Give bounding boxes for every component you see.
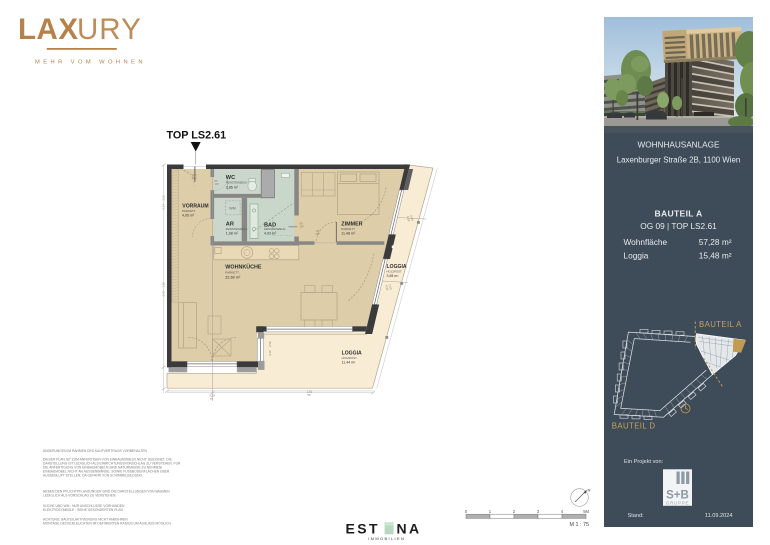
- svg-text:WOHNHAUSANLAGE: WOHNHAUSANLAGE: [638, 141, 720, 150]
- svg-text:4,03 m²: 4,03 m²: [264, 231, 277, 235]
- svg-text:5M: 5M: [583, 509, 589, 514]
- svg-text:PARKETT: PARKETT: [341, 227, 355, 231]
- svg-text:197: 197: [215, 182, 220, 186]
- svg-text:PARKETT: PARKETT: [225, 270, 239, 274]
- svg-text:15,48 m²: 15,48 m²: [699, 251, 732, 261]
- svg-text:11,44 m²: 11,44 m²: [342, 361, 356, 365]
- svg-text:ÄNDERUNGEN IM RAHMEN DES KAUFV: ÄNDERUNGEN IM RAHMEN DES KAUFVERTRAGS VO…: [43, 449, 148, 453]
- svg-text:FEINSTEINZEUG: FEINSTEINZEUG: [226, 181, 248, 185]
- svg-text:URY: URY: [77, 13, 142, 46]
- svg-text:32,69 m²: 32,69 m²: [225, 275, 241, 279]
- svg-text:FEINSTEINZEUG: FEINSTEINZEUG: [264, 227, 286, 231]
- svg-text:4,05 m²: 4,05 m²: [182, 214, 195, 218]
- svg-text:HOLZROST: HOLZROST: [387, 269, 403, 273]
- svg-text:LAX: LAX: [18, 13, 79, 46]
- svg-text:4: 4: [561, 509, 564, 514]
- svg-text:BAUTEIL A: BAUTEIL A: [699, 320, 742, 329]
- svg-text:220: 220: [192, 176, 197, 180]
- svg-text:197: 197: [315, 232, 320, 236]
- svg-text:NA: NA: [397, 521, 422, 537]
- svg-text:0: 0: [465, 509, 468, 514]
- svg-text:75: 75: [210, 397, 214, 401]
- svg-text:AR: AR: [226, 222, 234, 228]
- svg-text:AUSSENLUFT STELLEN, DA GEFAHR: AUSSENLUFT STELLEN, DA GEFAHR VON SCHIMM…: [43, 474, 143, 478]
- svg-text:1: 1: [489, 509, 492, 514]
- svg-text:Ein Projekt von:: Ein Projekt von:: [624, 459, 664, 465]
- svg-text:Wohnfläche: Wohnfläche: [624, 237, 668, 247]
- svg-text:55: 55: [307, 393, 311, 397]
- svg-text:HOLZROST: HOLZROST: [342, 356, 358, 360]
- svg-text:3: 3: [537, 509, 540, 514]
- svg-text:BAUTEIL A: BAUTEIL A: [654, 208, 702, 218]
- svg-text:11,48 m²: 11,48 m²: [341, 232, 356, 236]
- svg-text:4,10: 4,10: [268, 350, 272, 356]
- svg-text:WM: WM: [229, 206, 235, 210]
- svg-text:PARKETT: PARKETT: [182, 209, 196, 213]
- svg-text:BAUTEIL D: BAUTEIL D: [612, 422, 656, 431]
- svg-text:2: 2: [513, 509, 516, 514]
- svg-text:TOP LS2.61: TOP LS2.61: [167, 130, 227, 142]
- svg-text:LEDIGLICH ALS VORSCHLAG ZU VER: LEDIGLICH ALS VORSCHLAG ZU VERSTEHEN.: [43, 493, 116, 497]
- svg-text:2,59: 2,59: [268, 341, 272, 347]
- svg-text:57,28 m²: 57,28 m²: [699, 237, 732, 247]
- svg-text:3,98 m²: 3,98 m²: [387, 274, 400, 278]
- svg-text:11.09.2024: 11.09.2024: [705, 513, 733, 519]
- svg-text:ELEKTROSYMBOLE : SIEHE GESONDE: ELEKTROSYMBOLE : SIEHE GESONDERTEN PLAN: [43, 508, 123, 512]
- svg-text:WC: WC: [226, 175, 235, 181]
- svg-text:Laxenburger Straße 2B, 1100 Wi: Laxenburger Straße 2B, 1100 Wien: [617, 155, 741, 164]
- svg-text:N: N: [588, 488, 591, 493]
- svg-text:197: 197: [300, 225, 305, 229]
- svg-text:EST: EST: [346, 521, 380, 537]
- svg-text:GRUPPE: GRUPPE: [666, 500, 690, 505]
- svg-text:OG 09 | TOP LS2.61: OG 09 | TOP LS2.61: [640, 221, 717, 231]
- svg-text:Stand:: Stand:: [628, 513, 645, 519]
- svg-text:IMMOBILIEN: IMMOBILIEN: [368, 536, 405, 541]
- svg-text:Loggia: Loggia: [624, 251, 649, 261]
- svg-text:1,98 m²: 1,98 m²: [226, 231, 239, 235]
- svg-text:FEINSTEINZEUG: FEINSTEINZEUG: [226, 227, 248, 231]
- svg-text:MONTAGE DECKENLEUCHTEN IM DEFI: MONTAGE DECKENLEUCHTEN IM DEFINIERTEN RA…: [43, 521, 172, 525]
- svg-text:MEHR VOM WOHNEN: MEHR VOM WOHNEN: [35, 60, 146, 66]
- svg-text:M 1 : 75: M 1 : 75: [570, 522, 589, 528]
- svg-text:2,86 m²: 2,86 m²: [226, 186, 239, 190]
